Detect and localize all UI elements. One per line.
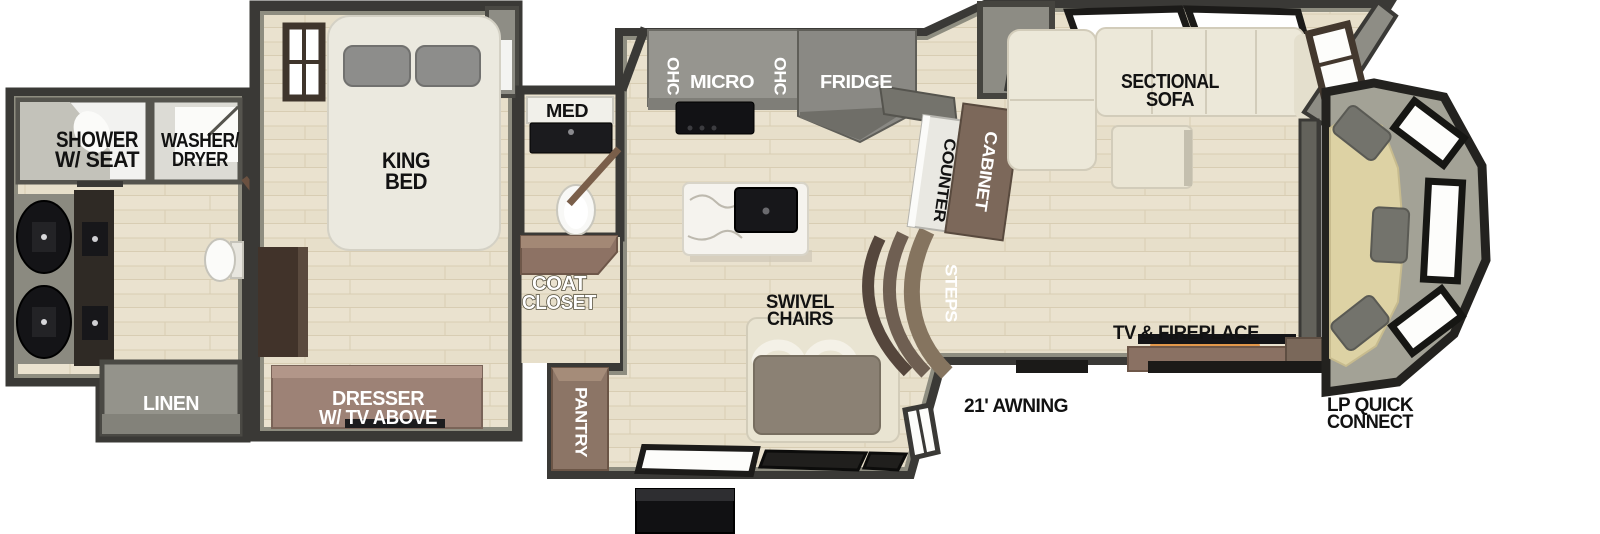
fridge-label: FRIDGE bbox=[820, 72, 893, 92]
pillow bbox=[344, 46, 410, 86]
cap-window bbox=[1423, 181, 1462, 281]
rv-floorplan: SHOWER W/ SEAT WASHER/ DRYER LINEN KING … bbox=[0, 0, 1600, 534]
bottom-window bbox=[1148, 361, 1324, 373]
dresser-top-edge bbox=[272, 366, 482, 378]
micro-label: MICRO bbox=[690, 72, 755, 92]
faucet-dot bbox=[92, 236, 98, 242]
shower-label: W/ SEAT bbox=[55, 147, 140, 172]
dresser-label: W/ TV ABOVE bbox=[319, 407, 437, 429]
med-label: MED bbox=[546, 101, 589, 121]
half-bath-sink bbox=[530, 123, 612, 153]
lp-quick-connect-label: CONNECT bbox=[1327, 412, 1414, 433]
swivel-chairs-label: CHAIRS bbox=[767, 309, 833, 330]
ottoman-side bbox=[1184, 130, 1192, 186]
ottoman bbox=[1112, 126, 1192, 188]
entry-door bbox=[638, 447, 757, 474]
front-cap bbox=[1326, 83, 1486, 392]
faucet-dot bbox=[92, 320, 98, 326]
pillow bbox=[416, 46, 480, 86]
entry-window bbox=[760, 451, 866, 470]
faucet-dot bbox=[568, 129, 574, 135]
sink-drain bbox=[41, 234, 47, 240]
living-right-wall bbox=[1300, 120, 1318, 362]
bedroom bbox=[255, 6, 517, 436]
island-faucet bbox=[763, 208, 770, 215]
sink-drain bbox=[41, 319, 47, 325]
cooktop-knob bbox=[700, 126, 705, 131]
toilet-bowl bbox=[205, 239, 235, 281]
seat-pillow bbox=[1371, 207, 1410, 263]
sectional-sofa-label: SOFA bbox=[1146, 89, 1194, 111]
floorplan-canvas: SHOWER W/ SEAT WASHER/ DRYER LINEN KING … bbox=[0, 0, 1600, 534]
bottom-window bbox=[1016, 360, 1088, 373]
pantry-top bbox=[552, 368, 608, 381]
swivel-table bbox=[754, 356, 880, 434]
cooktop-knob bbox=[688, 126, 693, 131]
wardrobe-face bbox=[298, 247, 308, 357]
linen-label: LINEN bbox=[143, 393, 199, 415]
entry-window bbox=[864, 453, 906, 470]
coat-closet-top bbox=[521, 236, 617, 248]
washer-dryer-label: DRYER bbox=[172, 149, 229, 171]
shower-door bbox=[77, 181, 123, 187]
linen-cabinet-face bbox=[102, 414, 240, 434]
awning-label: 21' AWNING bbox=[964, 396, 1068, 417]
coat-closet-label: CLOSET bbox=[522, 292, 596, 314]
tv-fireplace-label: TV & FIREPLACE bbox=[1113, 323, 1259, 344]
steps-label: STEPS bbox=[942, 264, 961, 322]
cooktop-knob bbox=[712, 126, 717, 131]
entry-step-top bbox=[636, 489, 734, 501]
pantry-label: PANTRY bbox=[572, 387, 591, 458]
ohc-left-label: OHC bbox=[664, 57, 683, 95]
bathroom bbox=[10, 92, 291, 438]
king-bed-label: BED bbox=[385, 169, 427, 194]
ohc-right-label: OHC bbox=[771, 57, 790, 95]
half-bath bbox=[517, 90, 621, 363]
